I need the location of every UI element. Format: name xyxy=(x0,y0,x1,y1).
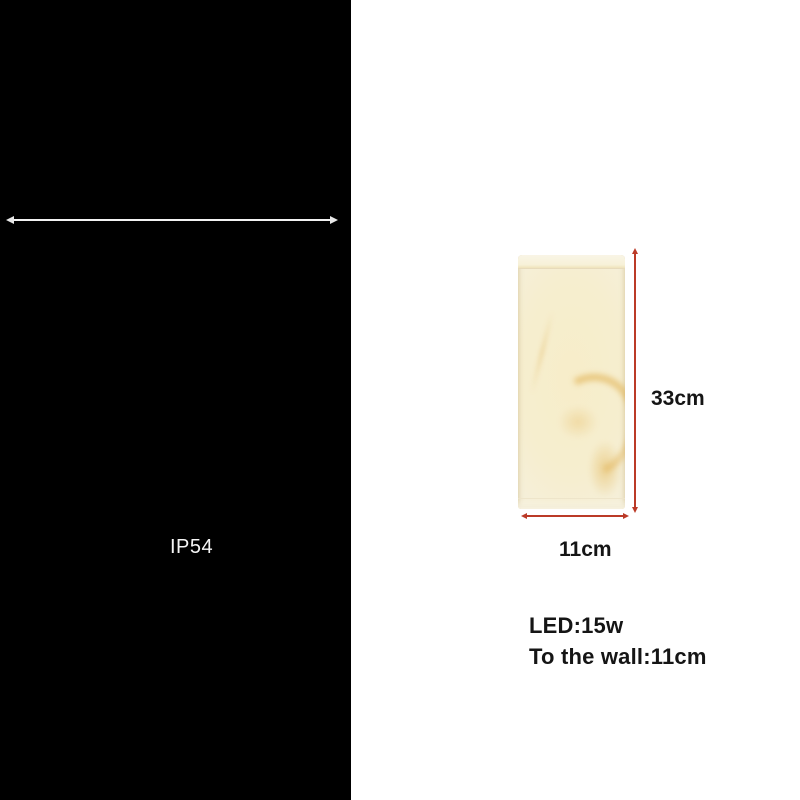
lamp-top-cap xyxy=(518,255,625,269)
marble-vein-streak xyxy=(530,311,554,394)
arrow-left-icon xyxy=(6,216,14,224)
width-dimension-line-left xyxy=(8,219,336,221)
product-dimension-image: IP54 33cm 11cm LED:15w To the wall:11cm xyxy=(0,0,800,800)
arrow-right-icon xyxy=(623,513,629,519)
lamp-bottom-edge xyxy=(518,498,625,509)
arrow-down-icon xyxy=(632,507,638,513)
arrow-up-icon xyxy=(632,248,638,254)
marble-vein-blob xyxy=(588,440,622,498)
arrow-left-icon xyxy=(521,513,527,519)
marble-wall-lamp-image xyxy=(518,255,625,509)
left-black-panel: IP54 xyxy=(0,0,351,800)
spec-wall-distance: To the wall:11cm xyxy=(529,645,707,668)
height-dimension-line xyxy=(634,253,636,508)
spec-led-wattage: LED:15w xyxy=(529,614,623,637)
arrow-right-icon xyxy=(330,216,338,224)
width-dimension-line xyxy=(523,515,627,517)
width-dimension-label: 11cm xyxy=(559,539,612,561)
right-white-panel: 33cm 11cm LED:15w To the wall:11cm xyxy=(351,0,800,800)
ip-rating-label: IP54 xyxy=(170,536,213,558)
height-dimension-label: 33cm xyxy=(651,388,705,410)
